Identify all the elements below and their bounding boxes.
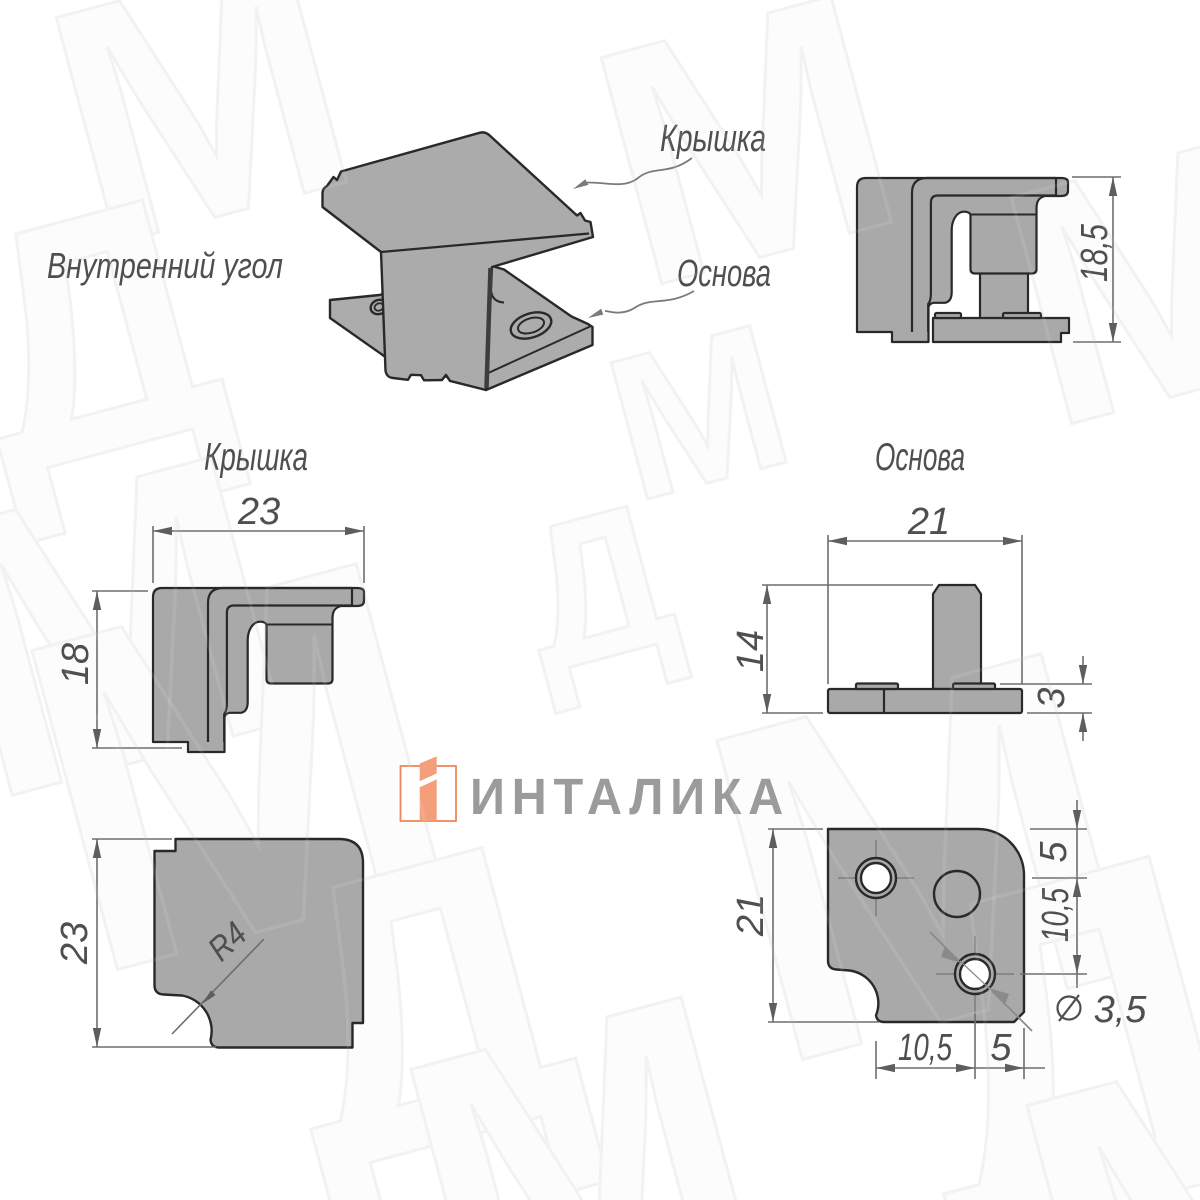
svg-text:Основа: Основа xyxy=(875,436,965,479)
svg-text:21: 21 xyxy=(907,501,950,543)
